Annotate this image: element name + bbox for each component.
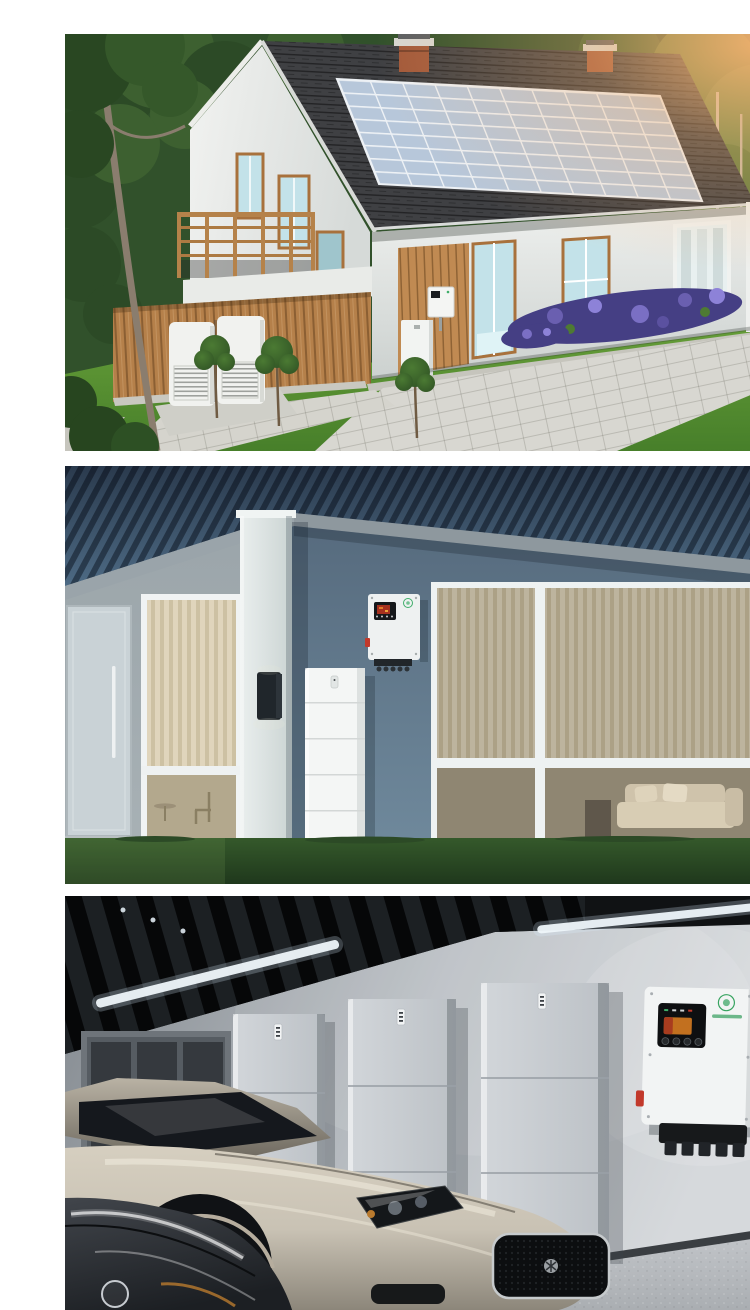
right-window: [431, 582, 750, 848]
dc-switch: [365, 638, 370, 647]
garage-illustration: [65, 896, 750, 1310]
photo-solar-house: [65, 34, 750, 451]
battery-body: [305, 668, 365, 844]
lawn: [65, 836, 750, 884]
left-window: [141, 594, 242, 844]
door-handle: [112, 666, 116, 758]
sun-flare: [65, 34, 750, 451]
fuel-cap: [102, 1281, 128, 1307]
stacked-battery: [301, 668, 375, 851]
photo-modern-home: [65, 466, 750, 884]
hybrid-inverter: [634, 986, 750, 1157]
page: [0, 0, 750, 1310]
photo-garage: [65, 896, 750, 1310]
inverter-connectors: [374, 659, 412, 666]
dc-switch: [636, 1090, 644, 1106]
front-door: [65, 606, 135, 842]
solar-house-illustration: [65, 34, 750, 451]
lower-intake: [371, 1284, 445, 1304]
battery-indicator: [331, 676, 338, 688]
modern-home-illustration: [65, 466, 750, 884]
wall-sconce: [253, 665, 285, 730]
inverter-screen: [377, 605, 390, 614]
front-grille: [493, 1234, 609, 1298]
